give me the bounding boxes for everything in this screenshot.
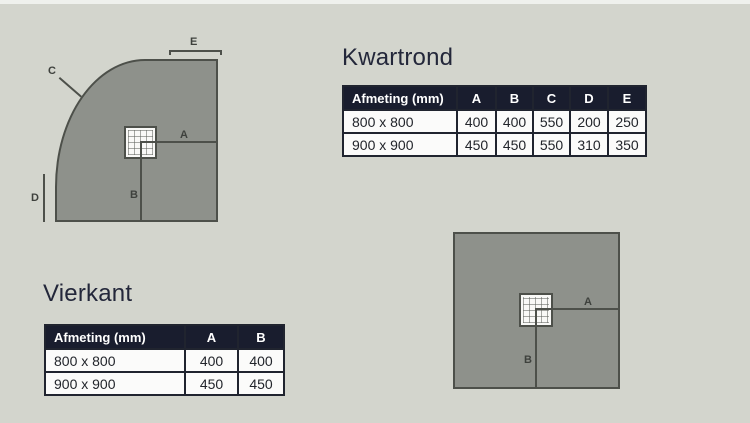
- table-row: 900 x 900 450 450: [45, 372, 284, 395]
- dim-label-a: A: [180, 130, 188, 141]
- dimension-callout-line-c: [59, 77, 82, 98]
- column-header: Afmeting (mm): [343, 86, 457, 110]
- column-header: B: [238, 325, 284, 349]
- dimension-line-a: [535, 308, 620, 310]
- value-cell: 310: [570, 133, 608, 156]
- size-cell: 800 x 800: [343, 110, 457, 133]
- column-header: A: [457, 86, 496, 110]
- column-header: E: [608, 86, 646, 110]
- value-cell: 450: [238, 372, 284, 395]
- table-row: 800 x 800 400 400 550 200 250: [343, 110, 646, 133]
- value-cell: 400: [238, 349, 284, 372]
- value-cell: 350: [608, 133, 646, 156]
- size-cell: 800 x 800: [45, 349, 185, 372]
- dim-label-b: B: [130, 190, 138, 201]
- value-cell: 400: [496, 110, 533, 133]
- dimension-line-a: [140, 141, 218, 143]
- column-header: C: [533, 86, 570, 110]
- size-cell: 900 x 900: [45, 372, 185, 395]
- column-header: A: [185, 325, 238, 349]
- value-cell: 550: [533, 110, 570, 133]
- value-cell: 450: [496, 133, 533, 156]
- value-cell: 200: [570, 110, 608, 133]
- value-cell: 400: [185, 349, 238, 372]
- vierkant-header-row: Afmeting (mm) A B: [45, 325, 284, 349]
- value-cell: 550: [533, 133, 570, 156]
- dim-label-c: C: [48, 66, 56, 77]
- dim-label-a: A: [584, 297, 592, 308]
- dimension-line-b: [140, 141, 142, 222]
- vierkant-title: Vierkant: [43, 280, 132, 308]
- value-cell: 400: [457, 110, 496, 133]
- value-cell: 450: [457, 133, 496, 156]
- value-cell: 250: [608, 110, 646, 133]
- dimension-line-d: [43, 174, 45, 222]
- column-header: Afmeting (mm): [45, 325, 185, 349]
- value-cell: 450: [185, 372, 238, 395]
- kwartrond-title: Kwartrond: [342, 44, 453, 72]
- table-row: 900 x 900 450 450 550 310 350: [343, 133, 646, 156]
- dimension-line-b: [535, 308, 537, 389]
- table-row: 800 x 800 400 400: [45, 349, 284, 372]
- column-header: D: [570, 86, 608, 110]
- vierkant-table: Afmeting (mm) A B 800 x 800 400 400 900 …: [44, 324, 285, 396]
- dim-label-d: D: [31, 193, 39, 204]
- dim-label-e: E: [190, 37, 197, 48]
- dim-label-b: B: [524, 355, 532, 366]
- size-cell: 900 x 900: [343, 133, 457, 156]
- column-header: B: [496, 86, 533, 110]
- top-strip: [0, 0, 750, 4]
- kwartrond-header-row: Afmeting (mm) A B C D E: [343, 86, 646, 110]
- kwartrond-table: Afmeting (mm) A B C D E 800 x 800 400 40…: [342, 85, 647, 157]
- dimension-line-e: [169, 50, 222, 52]
- page: E C A B D Kwartrond Afmeting (mm) A B C …: [0, 0, 750, 423]
